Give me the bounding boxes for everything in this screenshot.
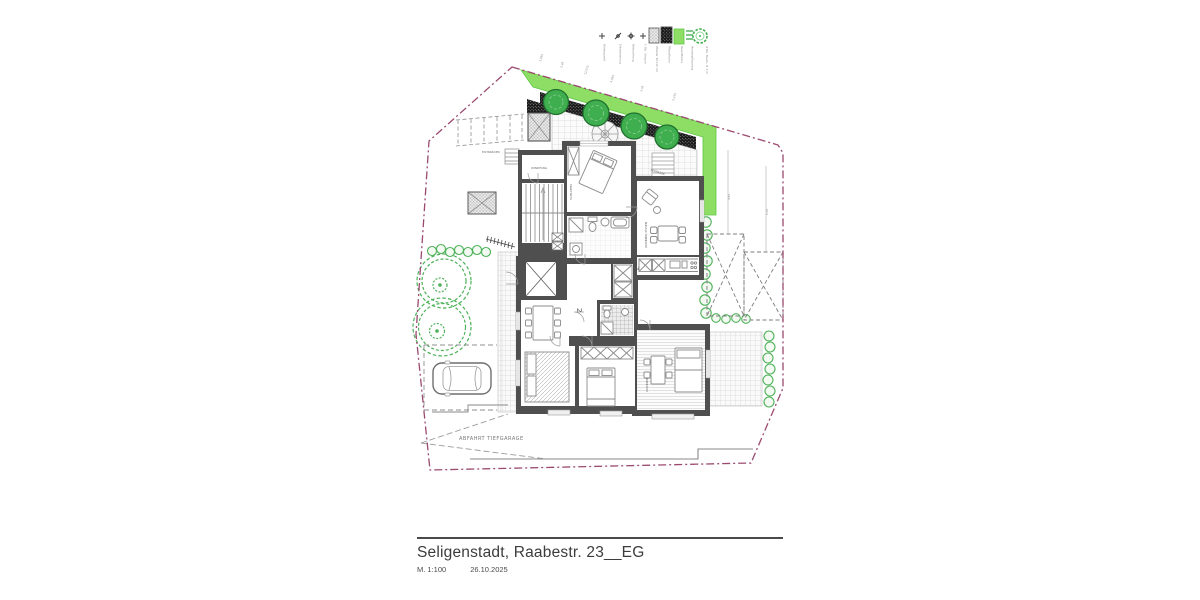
existing-tree-2 — [413, 298, 471, 356]
future-parking-boxes — [707, 234, 783, 320]
cabinet-column — [614, 265, 632, 297]
legend: Höhenpunkt Entwässerung Beleuchtung 1 St… — [599, 27, 709, 74]
bike-label: FAHRRÄDER — [482, 149, 500, 154]
drawing-scale: M. 1:100 — [417, 565, 446, 574]
dimension-extension-lines — [728, 150, 766, 252]
dim-text: 3.495 — [538, 53, 544, 62]
planting-swatch-icon — [661, 27, 672, 43]
legend-label: Pflaster 10×20 cm — [655, 46, 659, 72]
legend-label: Pflanzfläche — [668, 46, 672, 63]
elevation-marker-icon — [599, 33, 605, 39]
legend-label: Rasenfläche — [680, 46, 684, 63]
building — [506, 141, 710, 419]
shrub-marker-icon — [640, 33, 646, 39]
legend-label: Höhenpunkt — [603, 44, 607, 62]
car-icon — [433, 361, 491, 396]
windfang-label: WINDFANG — [531, 166, 548, 170]
bike-parking — [456, 114, 524, 146]
drawing-date: 26.10.2025 — [470, 565, 508, 574]
legend-label: Heckenpflanzung — [691, 46, 695, 70]
bed-bottom-left — [525, 352, 569, 402]
room-label-wohnen-essen: WOHNEN / ESSEN — [644, 222, 648, 248]
dim-text: 3.76 — [639, 85, 645, 92]
paving-swatch-icon — [649, 28, 659, 43]
ramp-label: ABFAHRT TIEFGARAGE — [459, 436, 524, 442]
dim-text: 2.26 — [559, 61, 565, 68]
existing-tree-1 — [417, 254, 471, 308]
wardrobe-top — [568, 147, 579, 175]
planter-structure — [528, 113, 550, 141]
dim-text: 4.50 — [727, 194, 731, 200]
entry-steps — [505, 149, 519, 164]
dim-text: 12.015 — [583, 65, 590, 76]
legend-label: 4 Stk. Baum, H. 3 m — [705, 46, 709, 74]
room-label-wohnen: WOHNEN — [645, 378, 649, 392]
tree-symbol-icon — [693, 29, 707, 43]
legend-label: Beleuchtung — [632, 44, 636, 62]
light-marker-icon — [628, 33, 635, 40]
drawing-title: Seligenstadt, Raabestr. 23__EG — [417, 544, 783, 562]
hedge-row-left — [428, 245, 491, 257]
fence-symbol — [486, 236, 515, 249]
dim-text: 4.385 — [609, 74, 615, 83]
unit-number-2: 2 — [575, 308, 583, 312]
page: ABFAHRT TIEFGARAGE FAHRRÄDER TERRASSE WI… — [0, 0, 1200, 600]
dim-text: 5.235 — [671, 92, 677, 101]
room-label-schlafen: SCHLAFEN — [569, 184, 573, 200]
lower-terrace-tiles — [706, 332, 762, 406]
unit-number-7: 7 — [632, 266, 640, 270]
dim-text: 6.20 — [765, 209, 769, 215]
title-block: Seligenstadt, Raabestr. 23__EG M. 1:1002… — [417, 537, 783, 574]
site-plan-drawing: ABFAHRT TIEFGARAGE FAHRRÄDER TERRASSE WI… — [0, 0, 1200, 600]
hedge-column-lower-right — [763, 331, 775, 407]
shed-structure — [468, 192, 496, 214]
legend-label: Entwässerung — [619, 44, 623, 64]
drain-marker-icon — [615, 33, 621, 39]
legend-label: 1 Stk. Strauch — [644, 44, 648, 64]
hedge-swatch-icon — [686, 31, 693, 39]
shrub-row-mid — [712, 314, 751, 324]
lawn-swatch-icon — [674, 29, 684, 44]
living-left-furniture — [526, 306, 561, 340]
